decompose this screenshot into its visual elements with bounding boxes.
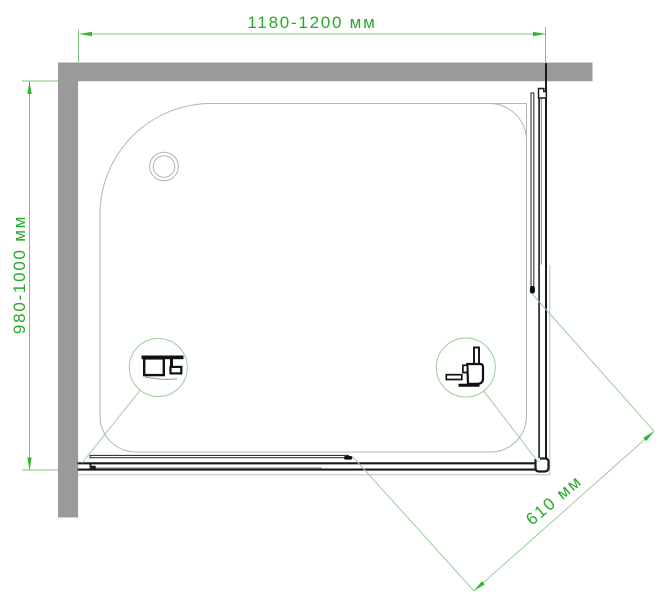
svg-text:980-1000 мм: 980-1000 мм [10, 215, 29, 334]
svg-text:1180-1200 мм: 1180-1200 мм [247, 13, 376, 32]
